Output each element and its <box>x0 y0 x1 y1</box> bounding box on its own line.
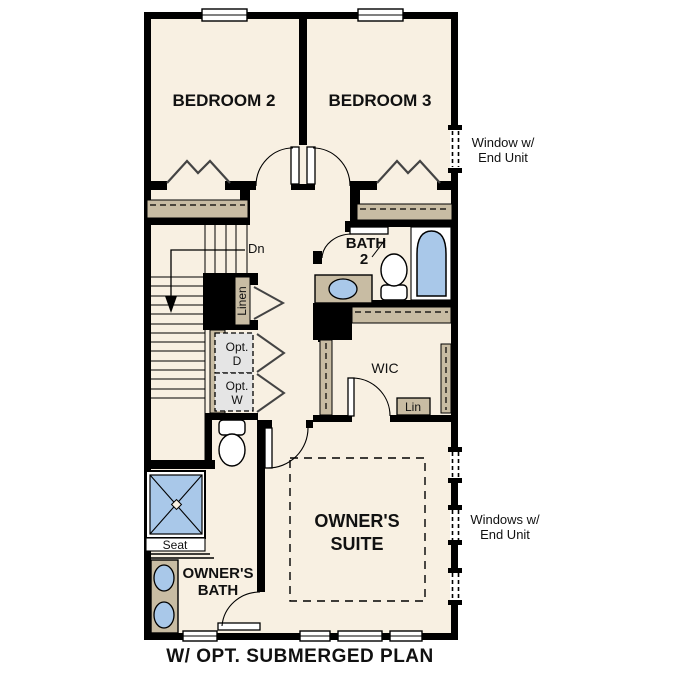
bath2-toilet <box>381 254 407 300</box>
plan-title: W/ OPT. SUBMERGED PLAN <box>0 646 600 668</box>
seat-label: Seat <box>163 538 188 552</box>
bath2-sink <box>329 279 357 299</box>
opt-washer-label-line1: Opt. <box>226 379 249 393</box>
wall-bed3-closet <box>352 220 458 227</box>
vanity-sink-2 <box>154 602 174 628</box>
opt-dryer-label-line2: D <box>233 354 242 368</box>
bath2-vanity <box>315 275 372 303</box>
owners-suite-door-leaf <box>265 428 272 468</box>
bedroom3-window-note-line1: Window w/ <box>472 135 535 150</box>
bedroom2-label: BEDROOM 2 <box>173 91 276 110</box>
linen-door-jamb <box>250 285 258 320</box>
soffit-bed3 <box>357 204 452 220</box>
floorplan-drawing: BEDROOM 2 BEDROOM 3 BATH 2 WIC Lin Linen… <box>0 0 687 687</box>
vanity-sink-1 <box>154 565 174 591</box>
bath2-tub <box>411 227 451 300</box>
lin-label: Lin <box>405 400 421 414</box>
stairs-down-label: Dn <box>248 241 265 256</box>
wic-label: WIC <box>371 360 398 376</box>
bedroom3-label: BEDROOM 3 <box>329 91 432 110</box>
soffit-bed2 <box>147 200 248 218</box>
owners-bath-label-line1: OWNER'S <box>182 565 253 582</box>
owners-suite-label-line1: OWNER'S <box>314 511 399 531</box>
side-annotations: Window w/ End Unit Windows w/ End Unit <box>470 135 540 542</box>
bed2-door-leaf <box>291 147 299 184</box>
wall-bed2-closet <box>144 218 250 225</box>
wall-owners-suite <box>257 420 265 592</box>
wall-segment <box>144 181 167 190</box>
bath2-label-line1: BATH <box>346 235 387 252</box>
bedroom3-window-note-line2: End Unit <box>478 150 528 165</box>
wall-stair-bath <box>144 460 215 469</box>
owners-windows-note-line2: End Unit <box>480 527 530 542</box>
bed3-door-leaf <box>307 147 315 184</box>
wall-segment <box>265 420 272 428</box>
wall-niche-top <box>205 413 258 420</box>
linen-label: Linen <box>235 286 249 315</box>
wall-segment <box>306 420 313 428</box>
wall-bath2-hinge <box>313 251 322 264</box>
bath2-label-line2: 2 <box>360 251 368 268</box>
wall-niche-left <box>205 420 212 462</box>
opt-windows-owners-suite <box>448 447 462 605</box>
opt-dryer-label-line1: Opt. <box>226 340 249 354</box>
owners-bath-toilet <box>219 420 245 466</box>
owners-bath-label-line2: BATH <box>198 582 239 599</box>
owners-bath-vanity <box>151 560 178 633</box>
wall-segment <box>291 184 315 190</box>
opt-window-bed3 <box>448 125 462 173</box>
bath2-door-leaf <box>350 227 388 234</box>
owners-bath-door-leaf <box>218 623 260 630</box>
wall-bedroom-divider <box>299 12 307 145</box>
wall-wic-bottom <box>313 415 352 422</box>
owners-suite-label-line2: SUITE <box>330 534 383 554</box>
opt-washer-label-line2: W <box>231 393 243 407</box>
owners-windows-note-line1: Windows w/ <box>470 512 540 527</box>
wic-door-leaf <box>348 378 354 416</box>
soffit-wic-top <box>352 307 451 323</box>
wall-wic-bottom <box>390 415 458 422</box>
floorplan-page: BEDROOM 2 BEDROOM 3 BATH 2 WIC Lin Linen… <box>0 0 687 687</box>
